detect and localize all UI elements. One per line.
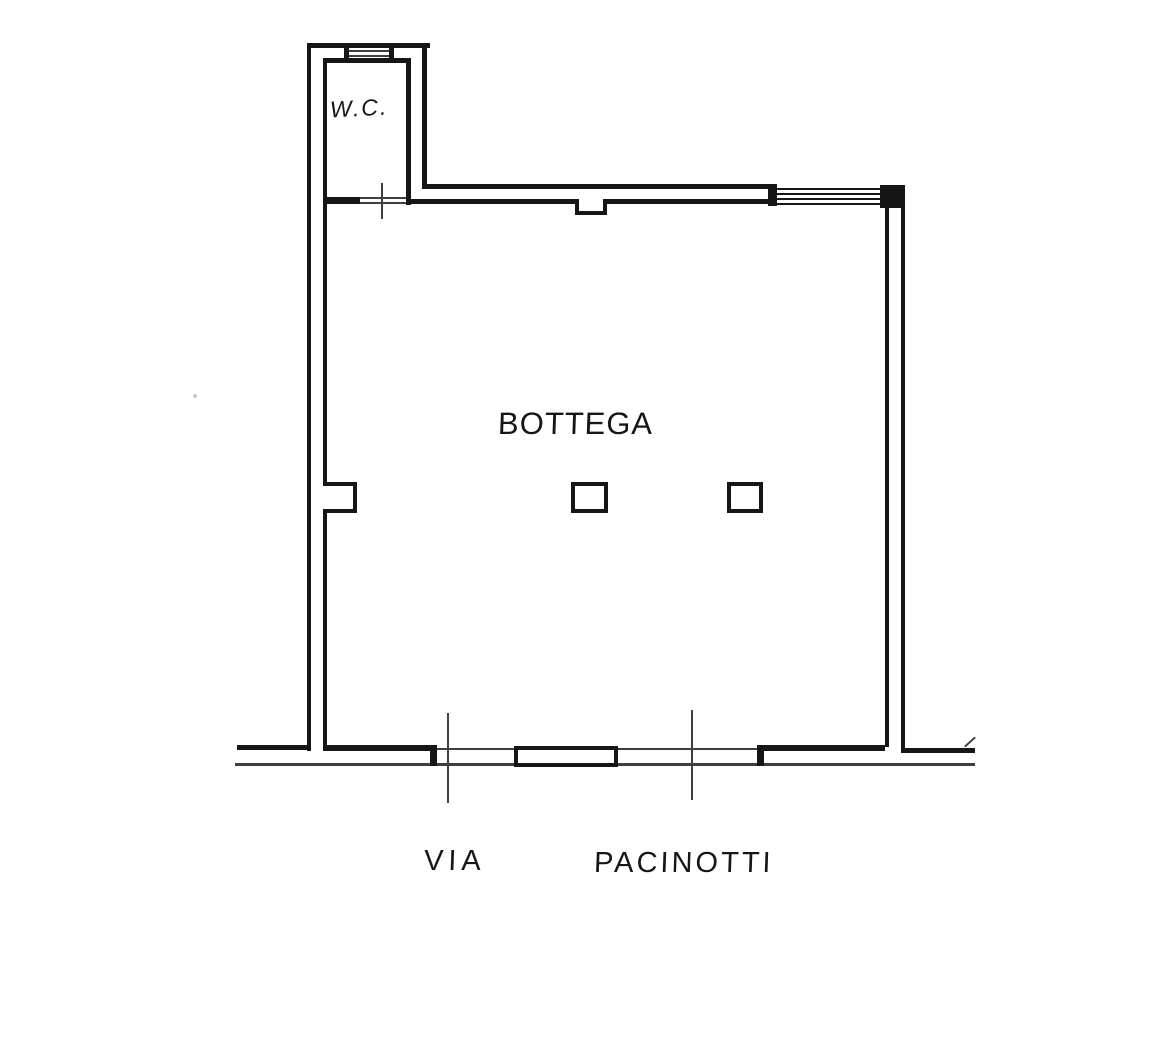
wall-top-outer — [422, 184, 777, 189]
wall-neighbor-right — [902, 748, 975, 753]
wc-door-threshold-line-1 — [360, 197, 406, 199]
window-corner-block — [880, 185, 903, 208]
storefront-door-frame — [514, 746, 618, 767]
pillar-1 — [571, 482, 608, 513]
wc-wall-top-outer — [307, 43, 430, 48]
street-label-via: VIA — [423, 845, 486, 878]
window-glass-line-1 — [777, 188, 880, 190]
wc-wall-bottom-solid — [327, 197, 360, 204]
wall-bottom-left — [323, 745, 437, 751]
storefront-opening-right-line — [618, 748, 757, 750]
wc-door-threshold-line-2 — [360, 202, 406, 204]
window-glass-line-2 — [777, 193, 880, 195]
survey-tick-mark-1 — [447, 713, 449, 803]
wall-neighbor-left — [237, 745, 307, 750]
room-label-wc: W.C. — [329, 93, 389, 123]
wc-wall-top-inner — [323, 58, 411, 63]
wc-window-glass-line-1 — [349, 50, 389, 52]
window-jamb-left-icon — [768, 185, 777, 206]
scan-artifact-dot — [193, 394, 197, 398]
wall-bottom-right — [757, 745, 885, 751]
window-glass-line-3 — [777, 198, 880, 200]
floor-plan-canvas: W.C. BOTTEGA VIA PACINOTTI — [0, 0, 1170, 1050]
wall-notch-bottom — [575, 211, 607, 215]
survey-tick-mark-2 — [691, 710, 693, 800]
wall-top-inner-right — [607, 199, 768, 204]
wc-window-glass-line-2 — [349, 55, 389, 57]
wall-left-outer — [307, 43, 311, 751]
wall-top-inner-left — [406, 199, 575, 204]
room-label-bottega: BOTTEGA — [497, 406, 653, 442]
window-glass-line-4 — [777, 203, 880, 205]
street-label-pacinotti: PACINOTTI — [593, 847, 774, 880]
pillar-2 — [727, 482, 763, 513]
wall-right-outer — [901, 185, 905, 753]
wall-neighbor-right-end-tick — [964, 737, 976, 748]
wc-wall-right-outer — [422, 43, 427, 189]
wall-right-inner — [885, 207, 889, 747]
wall-bottom-left-cap — [430, 745, 437, 766]
wc-door-tick-mark — [381, 183, 383, 219]
wall-pilaster — [323, 482, 357, 513]
wall-left-inner — [323, 60, 327, 747]
wc-wall-right-inner — [406, 58, 411, 205]
